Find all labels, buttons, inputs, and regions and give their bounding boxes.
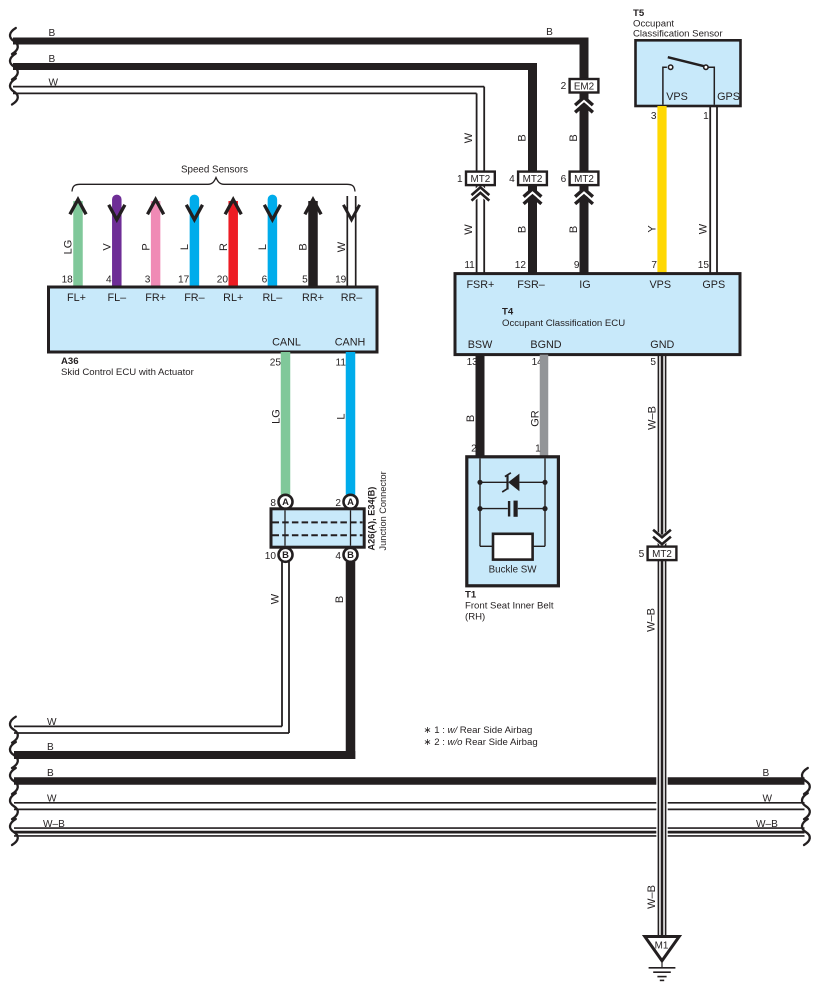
- svg-text:7: 7: [651, 260, 657, 271]
- svg-text:V: V: [102, 243, 114, 251]
- svg-text:∗ 1 : w/ Rear Side Airbag: ∗ 1 : w/ Rear Side Airbag: [424, 725, 533, 736]
- svg-text:GR: GR: [529, 410, 541, 427]
- svg-text:GPS: GPS: [702, 279, 725, 291]
- svg-text:W: W: [336, 241, 348, 252]
- svg-text:Skid Control ECU with Actuator: Skid Control ECU with Actuator: [61, 367, 195, 378]
- svg-text:19: 19: [335, 275, 347, 286]
- svg-text:FR+: FR+: [145, 292, 166, 304]
- svg-text:FR–: FR–: [184, 292, 204, 304]
- svg-text:IG: IG: [579, 279, 590, 291]
- svg-text:6: 6: [561, 174, 567, 185]
- svg-text:4: 4: [509, 174, 515, 185]
- svg-text:B: B: [49, 28, 56, 39]
- svg-text:9: 9: [574, 260, 580, 271]
- svg-text:B: B: [546, 27, 553, 38]
- svg-text:Speed Sensors: Speed Sensors: [181, 165, 248, 176]
- svg-text:Front Seat Inner Belt: Front Seat Inner Belt: [465, 600, 554, 611]
- svg-text:10: 10: [265, 551, 277, 562]
- svg-text:A26(A), E34(B): A26(A), E34(B): [367, 487, 377, 551]
- svg-text:Buckle SW: Buckle SW: [489, 564, 538, 575]
- svg-text:2: 2: [471, 443, 477, 454]
- svg-text:5: 5: [650, 357, 656, 368]
- svg-text:B: B: [465, 415, 477, 422]
- svg-text:T4: T4: [502, 306, 514, 317]
- svg-text:4: 4: [335, 551, 341, 562]
- svg-text:W–B: W–B: [646, 406, 658, 430]
- svg-text:BSW: BSW: [468, 339, 493, 351]
- svg-text:B: B: [298, 243, 310, 250]
- svg-text:A: A: [347, 496, 354, 507]
- svg-text:B: B: [282, 549, 289, 560]
- svg-text:W–B: W–B: [756, 819, 778, 830]
- svg-text:RR+: RR+: [302, 292, 324, 304]
- svg-text:LG: LG: [63, 240, 75, 255]
- svg-text:∗ 2 : w/o Rear Side Airbag: ∗ 2 : w/o Rear Side Airbag: [424, 737, 538, 748]
- svg-text:W: W: [463, 224, 475, 235]
- svg-text:25: 25: [270, 358, 282, 369]
- svg-text:20: 20: [217, 275, 229, 286]
- svg-text:B: B: [347, 549, 354, 560]
- svg-text:B: B: [516, 134, 528, 141]
- svg-text:MT2: MT2: [652, 549, 672, 560]
- svg-text:15: 15: [698, 260, 710, 271]
- svg-text:W–B: W–B: [645, 608, 657, 632]
- svg-text:12: 12: [515, 260, 527, 271]
- svg-text:L: L: [257, 244, 269, 250]
- svg-text:A36: A36: [61, 356, 79, 367]
- svg-text:CANL: CANL: [272, 337, 301, 349]
- svg-text:RR–: RR–: [341, 292, 363, 304]
- svg-text:B: B: [49, 54, 56, 65]
- svg-text:B: B: [47, 768, 54, 779]
- svg-text:3: 3: [651, 111, 657, 122]
- svg-text:L: L: [179, 244, 191, 250]
- svg-text:FSR–: FSR–: [517, 279, 545, 291]
- svg-text:11: 11: [464, 260, 475, 271]
- svg-text:W: W: [47, 717, 57, 728]
- svg-text:1: 1: [535, 443, 541, 454]
- svg-text:5: 5: [302, 275, 308, 286]
- svg-text:MT2: MT2: [471, 174, 491, 185]
- svg-text:B: B: [47, 742, 54, 753]
- svg-text:18: 18: [62, 275, 74, 286]
- svg-text:Junction Connector: Junction Connector: [378, 471, 388, 550]
- svg-text:RL+: RL+: [223, 292, 243, 304]
- svg-text:P: P: [140, 243, 152, 250]
- svg-text:BGND: BGND: [530, 339, 561, 351]
- svg-text:VPS: VPS: [666, 91, 688, 103]
- svg-text:GPS: GPS: [717, 91, 740, 103]
- svg-text:17: 17: [178, 275, 190, 286]
- svg-text:8: 8: [270, 498, 276, 509]
- svg-text:6: 6: [262, 275, 268, 286]
- svg-text:2: 2: [561, 81, 567, 92]
- svg-text:11: 11: [336, 358, 347, 369]
- svg-text:Occupant Classification ECU: Occupant Classification ECU: [502, 318, 625, 329]
- svg-text:A: A: [282, 496, 289, 507]
- svg-text:4: 4: [106, 275, 112, 286]
- svg-text:Y: Y: [647, 225, 659, 233]
- svg-text:W–B: W–B: [646, 885, 658, 909]
- svg-text:MT2: MT2: [523, 174, 543, 185]
- svg-text:1: 1: [703, 111, 709, 122]
- svg-text:LG: LG: [271, 409, 283, 424]
- svg-text:B: B: [516, 226, 528, 233]
- svg-text:CANH: CANH: [335, 337, 366, 349]
- svg-text:B: B: [334, 596, 346, 603]
- svg-text:3: 3: [145, 275, 151, 286]
- svg-text:W–B: W–B: [43, 819, 65, 830]
- svg-text:MT2: MT2: [574, 174, 594, 185]
- svg-text:FL+: FL+: [67, 292, 86, 304]
- svg-text:RL–: RL–: [262, 292, 282, 304]
- svg-text:B: B: [568, 226, 580, 233]
- svg-text:FSR+: FSR+: [466, 279, 494, 291]
- svg-text:B: B: [568, 134, 580, 141]
- svg-text:M1: M1: [655, 940, 669, 951]
- svg-text:GND: GND: [650, 339, 674, 351]
- svg-text:(RH): (RH): [465, 611, 485, 622]
- svg-text:L: L: [336, 413, 348, 419]
- svg-text:FL–: FL–: [107, 292, 126, 304]
- svg-text:W: W: [270, 593, 282, 604]
- svg-text:T5: T5: [633, 8, 645, 19]
- svg-text:2: 2: [335, 498, 341, 509]
- svg-text:VPS: VPS: [649, 279, 671, 291]
- svg-text:1: 1: [457, 174, 463, 185]
- svg-text:W: W: [49, 77, 59, 88]
- svg-text:W: W: [697, 223, 709, 234]
- svg-text:W: W: [763, 794, 773, 805]
- svg-text:EM2: EM2: [574, 81, 594, 92]
- svg-text:Classification Sensor: Classification Sensor: [633, 29, 723, 40]
- svg-text:W: W: [463, 132, 475, 143]
- svg-text:T1: T1: [465, 589, 477, 600]
- svg-text:B: B: [763, 768, 770, 779]
- svg-text:5: 5: [639, 549, 645, 560]
- svg-text:R: R: [218, 243, 230, 251]
- svg-text:W: W: [47, 794, 57, 805]
